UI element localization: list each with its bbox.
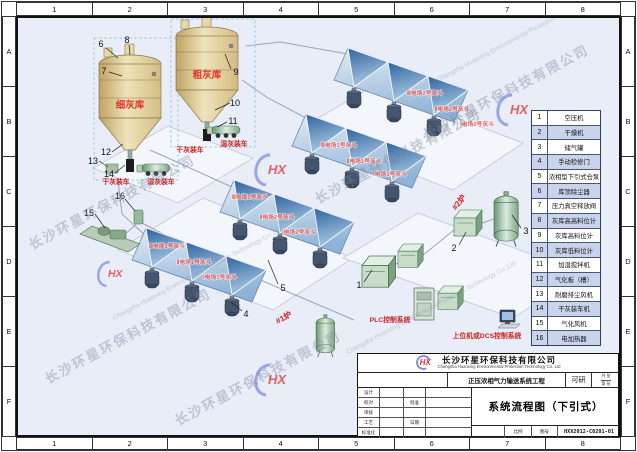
hx-logo-watermark <box>256 155 288 185</box>
legend-label: 干灰装车机 <box>548 302 600 316</box>
legend-row: 12气化板（槽） <box>532 273 600 288</box>
legend-row: 4手动检修门 <box>532 155 600 170</box>
ruler-cell: 6 <box>395 438 471 449</box>
hopper-label: Ⅲ电场1号灰斗 <box>149 242 185 250</box>
hx-logo-watermark <box>498 95 530 125</box>
legend-row: 1空压机 <box>532 111 600 126</box>
loading-chute <box>126 159 134 172</box>
legend-label: 加湿搅拌机 <box>548 258 600 272</box>
border-row-ruler-left: A B C D E F <box>2 16 16 437</box>
field-process: 工艺 <box>358 418 380 427</box>
title-block: HX 长沙环星环保科技有限公司 Changsha Huanxing Enviro… <box>357 353 619 437</box>
legend-label: 库顶除尘器 <box>548 184 600 198</box>
ruler-cell: A <box>3 17 15 87</box>
hopper-label: Ⅰ电场2号灰斗 <box>282 228 316 236</box>
callout-13: 13 <box>88 156 98 166</box>
ruler-cell: 5 <box>319 3 395 15</box>
coarse-ash-silo-label: 粗灰库 <box>193 69 222 81</box>
company-name-en: Changsha Huanxing Environmental Protecti… <box>438 365 561 369</box>
field-date: 日期 <box>404 418 426 427</box>
drawing-number: HXX2012-C0201-01 <box>558 426 620 438</box>
border-column-ruler-top: 1 2 3 4 5 6 7 8 <box>16 2 621 16</box>
legend-row: 14干灰装车机 <box>532 302 600 317</box>
wet-ash-truck <box>207 126 240 138</box>
legend-label: 电加热器 <box>548 331 600 345</box>
dcs-system-label: 上位机或DCS控制系统 <box>453 331 522 340</box>
border-column-ruler-bottom: 1 2 3 4 5 6 7 8 <box>16 437 621 450</box>
ruler-cell: 1 <box>17 438 93 449</box>
company-names: 长沙环星环保科技有限公司 Changsha Huanxing Environme… <box>438 356 561 369</box>
sheets-total: 共 张 <box>601 373 610 381</box>
title-block-company-row: HX 长沙环星环保科技有限公司 Changsha Huanxing Enviro… <box>358 354 618 373</box>
legend-num: 5 <box>532 170 548 184</box>
legend-label: 灰库低料位计 <box>548 243 600 257</box>
callout-9: 9 <box>233 67 238 77</box>
legend-label: 储气罐 <box>548 140 600 154</box>
equipment-legend-table: 1空压机 2干燥机 3储气罐 4手动检修门 5浓相型下引式仓泵 6库顶除尘器 7… <box>531 110 601 346</box>
callout-8: 8 <box>124 35 129 45</box>
legend-num: 8 <box>532 214 548 228</box>
empty-cell <box>472 426 505 438</box>
watermark-text: 长沙环星环保科技有限公司 <box>172 327 344 428</box>
legend-num: 4 <box>532 155 548 169</box>
legend-num: 13 <box>532 287 548 301</box>
ruler-cell: 1 <box>17 3 93 15</box>
legend-row: 13耐磨排尘风机 <box>532 287 600 302</box>
callout-1: 1 <box>356 280 361 290</box>
legend-num: 7 <box>532 199 548 213</box>
field-standard: 标准化 <box>358 428 380 438</box>
hx-logo-watermark <box>98 262 123 286</box>
ruler-cell: 3 <box>168 438 244 449</box>
legend-row: 9灰库高料位计 <box>532 229 600 244</box>
ruler-cell: C <box>622 157 634 227</box>
logo-hx-text: HX <box>420 358 431 367</box>
company-logo: HX <box>416 355 434 371</box>
legend-label: 耐磨排尘风机 <box>548 287 600 301</box>
sheet-count-cell: 共 张 第 张 <box>592 373 620 387</box>
ruler-cell: F <box>622 367 634 436</box>
legend-num: 11 <box>532 258 548 272</box>
callout-2: 2 <box>451 243 456 253</box>
legend-row: 7压力真空释放阀 <box>532 199 600 214</box>
legend-label: 灰库高高料位计 <box>548 214 600 228</box>
title-block-bottom-row: 比例 图号 HXX2012-C0201-01 <box>472 426 620 438</box>
callout-6: 6 <box>98 39 103 49</box>
callout-3: 3 <box>523 226 528 236</box>
callout-7: 7 <box>101 66 106 76</box>
field-dwg-label: 图号 <box>532 426 558 438</box>
legend-label: 气化板（槽） <box>548 273 600 287</box>
legend-num: 12 <box>532 273 548 287</box>
legend-label: 手动检修门 <box>548 155 600 169</box>
project-name: 正压浓相气力输送系统工程 <box>448 373 566 387</box>
design-stage: 可研 <box>566 373 592 387</box>
boiler2-label: #2炉 <box>449 192 468 211</box>
ruler-cell: 3 <box>168 3 244 15</box>
hopper-label: Ⅲ电场2号灰斗 <box>407 89 443 97</box>
callout-11: 11 <box>228 116 237 126</box>
legend-num: 9 <box>532 229 548 243</box>
field-scale: 比例 <box>505 426 532 438</box>
legend-label: 空压机 <box>548 111 600 125</box>
ruler-cell: F <box>3 367 15 436</box>
ruler-cell: A <box>622 17 634 87</box>
legend-label: 干燥机 <box>548 126 600 140</box>
legend-row: 6库顶除尘器 <box>532 184 600 199</box>
fine-ash-silo-label: 细灰库 <box>116 99 145 111</box>
legend-label: 压力真空释放阀 <box>548 199 600 213</box>
sheet-number: 第 张 <box>601 381 610 388</box>
ruler-cell: E <box>3 297 15 367</box>
ruler-cell: 6 <box>395 3 471 15</box>
callout-10: 10 <box>230 98 240 108</box>
drawing-title: 系统流程图（下引式） <box>472 388 620 426</box>
field-approve: 批准 <box>404 398 426 407</box>
legend-num: 15 <box>532 317 548 331</box>
legend-label: 灰库高料位计 <box>548 229 600 243</box>
callout-4: 4 <box>243 309 248 319</box>
callout-5: 5 <box>280 283 285 293</box>
ruler-cell: 5 <box>319 438 395 449</box>
legend-row: 11加湿搅拌机 <box>532 258 600 273</box>
legend-num: 1 <box>532 111 548 125</box>
ruler-cell: B <box>3 87 15 157</box>
ruler-cell: C <box>3 157 15 227</box>
air-compressor <box>362 256 396 287</box>
cad-drawing-sheet: 1 2 3 4 5 6 7 8 1 2 3 4 5 6 7 8 A B C D … <box>0 0 637 452</box>
ruler-cell: E <box>622 297 634 367</box>
legend-num: 16 <box>532 331 548 345</box>
hopper-label: Ⅰ电场1号灰斗 <box>203 273 237 281</box>
field-review: 审核 <box>358 408 380 417</box>
ruler-cell: 2 <box>93 3 169 15</box>
legend-row: 15气化风机 <box>532 317 600 332</box>
ruler-cell: 2 <box>93 438 169 449</box>
border-row-ruler-right: A B C D E F <box>621 16 635 437</box>
legend-row: 10灰库低料位计 <box>532 243 600 258</box>
hopper-label: Ⅲ电场2号灰斗 <box>232 193 268 201</box>
hopper-label: Ⅲ电场1号灰斗 <box>321 141 357 149</box>
ruler-cell: 8 <box>546 3 621 15</box>
legend-label: 气化风机 <box>548 317 600 331</box>
ruler-cell: D <box>3 227 15 297</box>
electric-heater <box>134 210 143 224</box>
legend-label: 浓相型下引式仓泵 <box>548 170 600 184</box>
boiler1-label: #1炉 <box>274 309 294 326</box>
title-block-project-row: 正压浓相气力输送系统工程 可研 共 张 第 张 <box>358 373 618 388</box>
watermark-text: 长沙环星环保科技有限公司 <box>42 285 214 386</box>
ruler-cell: 4 <box>244 438 320 449</box>
legend-num: 2 <box>532 126 548 140</box>
field-design: 设计 <box>358 388 380 397</box>
field-check: 校对 <box>358 398 380 407</box>
empty-cell <box>358 373 448 387</box>
legend-num: 10 <box>532 243 548 257</box>
legend-row: 2干燥机 <box>532 126 600 141</box>
callout-14: 14 <box>104 169 114 179</box>
legend-num: 3 <box>532 140 548 154</box>
ruler-cell: 7 <box>470 3 546 15</box>
ruler-cell: 7 <box>470 438 546 449</box>
ruler-cell: D <box>622 227 634 297</box>
hopper-label: Ⅱ电场2号灰斗 <box>259 213 294 221</box>
legend-num: 6 <box>532 184 548 198</box>
legend-row: 8灰库高高料位计 <box>532 214 600 229</box>
wet-loading-label: 湿灰装车 <box>220 139 247 148</box>
air-compressor <box>398 244 423 267</box>
callout-12: 12 <box>101 147 111 157</box>
legend-row: 5浓相型下引式仓泵 <box>532 170 600 185</box>
legend-num: 14 <box>532 302 548 316</box>
air-dryer <box>454 210 482 236</box>
gasification-fan-assembly <box>80 226 140 252</box>
ruler-cell: B <box>622 87 634 157</box>
legend-row: 16电加热器 <box>532 331 600 345</box>
ruler-cell: 8 <box>546 438 621 449</box>
legend-row: 3储气罐 <box>532 140 600 155</box>
ruler-cell: 4 <box>244 3 320 15</box>
signature-grid: 设计 校对批准 审核 工艺日期 标准化 <box>358 388 472 438</box>
